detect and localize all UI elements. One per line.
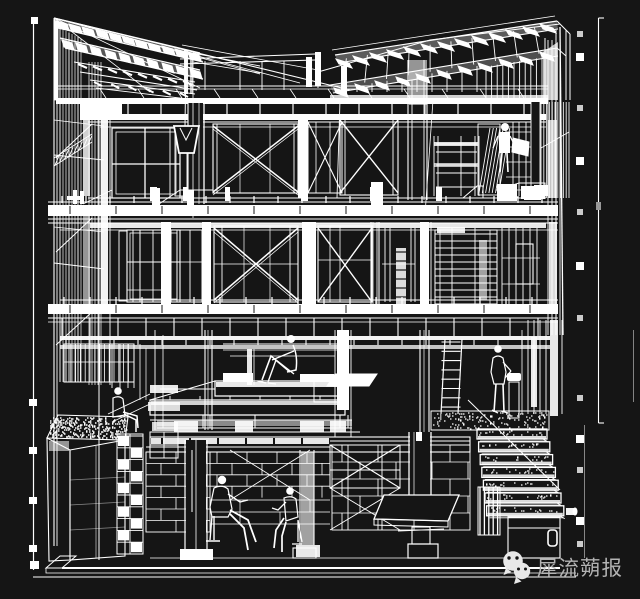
svg-text:犀流蒴报: 犀流蒴报 xyxy=(537,557,623,580)
